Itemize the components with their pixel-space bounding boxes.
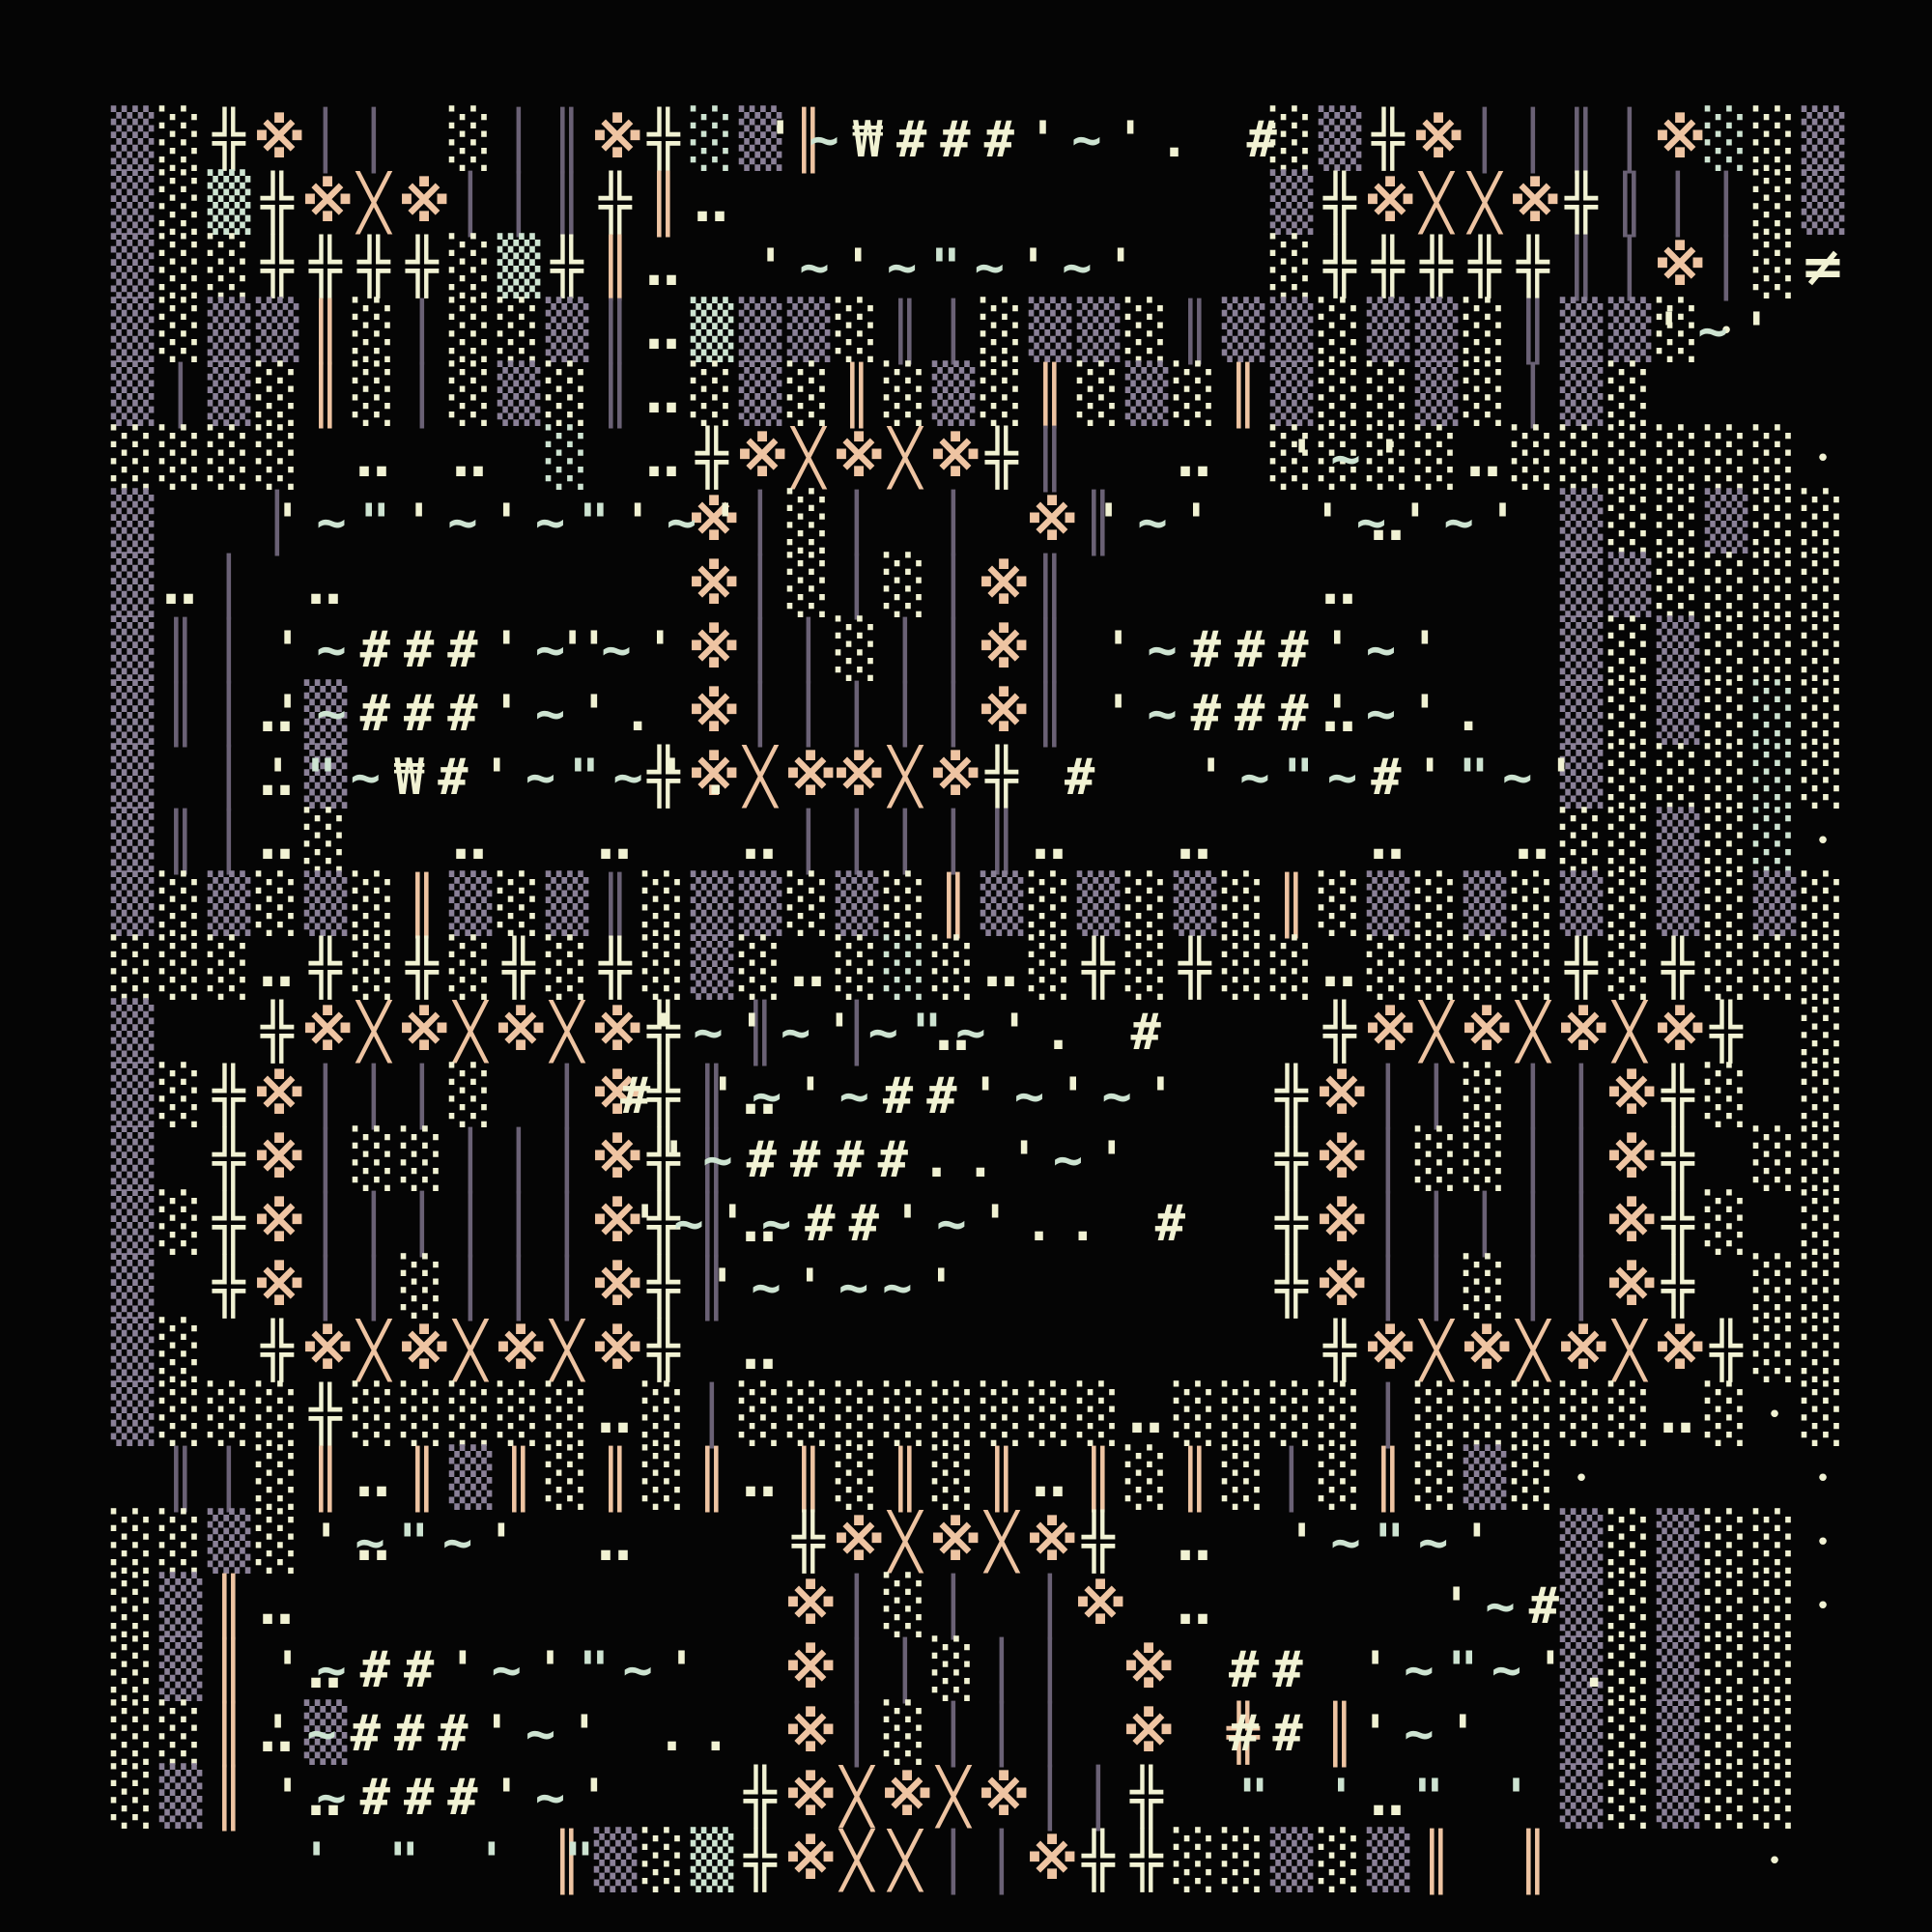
glyph-cell: ░: [1074, 1383, 1122, 1447]
glyph-cell: │: [301, 1065, 350, 1128]
glyph-cell: │: [978, 1702, 1026, 1766]
glyph-cell: ※: [301, 172, 350, 236]
glyph-cell: ░: [1557, 1383, 1605, 1447]
glyph-cell: ░: [1702, 1511, 1750, 1575]
glyph-cell: ░: [350, 363, 398, 427]
glyph-cell: ╬: [1074, 1511, 1122, 1575]
glyph-cell: ║: [398, 1447, 446, 1511]
text-char: ": [912, 1004, 955, 1062]
glyph-cell: ※: [784, 1830, 833, 1893]
text-char: ': [707, 1259, 751, 1317]
glyph-cell: ‥: [591, 810, 639, 873]
glyph-cell: ║: [1026, 618, 1074, 682]
glyph-cell: │: [1702, 172, 1750, 236]
glyph-cell: ╬: [398, 236, 446, 299]
glyph-cell: │: [1509, 1128, 1557, 1192]
text-char: ~: [316, 621, 359, 679]
glyph-cell: ║: [543, 108, 591, 172]
glyph-cell: │: [1509, 108, 1557, 172]
text-char: ': [272, 685, 316, 743]
glyph-cell: ░: [1702, 618, 1750, 682]
glyph-cell: ╳: [929, 1766, 978, 1830]
glyph-cell: ▒: [108, 1065, 156, 1128]
glyph-cell: ░: [1026, 937, 1074, 1001]
text-char: ~: [761, 1195, 805, 1253]
text-char: ": [399, 1514, 442, 1572]
glyph-cell: ▒: [1267, 363, 1316, 427]
glyph-cell: │: [205, 810, 253, 873]
glyph-cell: │: [1074, 1766, 1122, 1830]
glyph-cell: ░: [253, 363, 301, 427]
glyph-cell: ※: [1316, 1128, 1364, 1192]
glyph-cell: ░: [1702, 746, 1750, 810]
text-line: '"~₩#'~"~'.: [263, 746, 744, 810]
glyph-cell: ╬: [1267, 1128, 1316, 1192]
glyph-cell: ╬: [1461, 236, 1509, 299]
text-char: ': [1181, 494, 1225, 552]
text-char: ': [667, 1641, 710, 1699]
glyph-cell: ※: [398, 1320, 446, 1383]
text-line: '~': [1654, 299, 1785, 363]
glyph-cell: ‥: [253, 937, 301, 1001]
glyph-cell: ※: [1412, 108, 1461, 172]
text-char: [1268, 494, 1312, 552]
text-line: '~####..'~': [659, 1128, 1140, 1192]
text-char: #: [1191, 685, 1235, 743]
glyph-cell: │: [446, 1256, 495, 1320]
glyph-cell: ░: [978, 1383, 1026, 1447]
text-char: ': [311, 1514, 355, 1572]
glyph-cell: ╳: [446, 1320, 495, 1383]
text-line: '~#: [1441, 1575, 1573, 1638]
glyph-cell: ░: [156, 1065, 205, 1128]
glyph-cell: ░: [1750, 810, 1799, 873]
glyph-cell: ░: [1605, 937, 1654, 1001]
glyph-cell: │: [833, 682, 881, 746]
glyph-cell: │: [398, 1192, 446, 1256]
glyph-cell: │: [1267, 1447, 1316, 1511]
glyph-cell: │: [446, 1128, 495, 1192]
glyph-cell: ░: [1122, 299, 1171, 363]
glyph-cell: ╬: [1122, 1766, 1171, 1830]
glyph-cell: ░: [1605, 427, 1654, 491]
glyph-cell: ▒: [1557, 554, 1605, 618]
glyph-cell: │: [1412, 1192, 1461, 1256]
text-char: #: [404, 1769, 447, 1827]
glyph-cell: ░: [1461, 1256, 1509, 1320]
glyph-cell: ※: [1364, 1320, 1412, 1383]
text-line: '~"~': [1287, 1511, 1506, 1575]
glyph-cell: ▒: [1799, 108, 1847, 172]
glyph-cell: ▒: [688, 1830, 736, 1893]
text-char: #: [878, 1131, 922, 1189]
text-char: #: [1155, 1195, 1199, 1253]
text-char: ': [492, 494, 535, 552]
glyph-cell: ▒: [1654, 810, 1702, 873]
glyph-cell: ※: [688, 682, 736, 746]
glyph-cell: ║: [156, 682, 205, 746]
glyph-cell: ║: [784, 1447, 833, 1511]
glyph-cell: ░: [1799, 1256, 1847, 1320]
glyph-cell: ‥: [591, 1383, 639, 1447]
glyph-cell: ░: [1605, 1575, 1654, 1638]
glyph-cell: ▒: [1654, 1638, 1702, 1702]
text-char: ~: [1485, 1577, 1528, 1635]
text-char: ~: [1418, 1514, 1462, 1572]
glyph-cell: ║: [1219, 363, 1267, 427]
glyph-cell: ░: [1750, 1702, 1799, 1766]
glyph-cell: ╬: [1557, 937, 1605, 1001]
glyph-cell: ‥: [1316, 937, 1364, 1001]
glyph-cell: ░: [833, 299, 881, 363]
glyph-cell: ║: [1605, 172, 1654, 236]
glyph-cell: ░: [350, 299, 398, 363]
glyph-cell: ▒: [108, 491, 156, 554]
text-char: ': [718, 1195, 761, 1253]
glyph-cell: ▒: [108, 618, 156, 682]
glyph-cell: │: [446, 172, 495, 236]
glyph-cell: ░: [1702, 1383, 1750, 1447]
text-char: ': [843, 239, 887, 297]
text-char: ': [1018, 239, 1062, 297]
glyph-cell: ※: [1654, 108, 1702, 172]
glyph-cell: ※: [1557, 1320, 1605, 1383]
text-char: ': [1116, 111, 1159, 169]
glyph-cell: ▒: [1122, 363, 1171, 427]
glyph-cell: ╳: [881, 1830, 929, 1893]
glyph-cell: ╬: [978, 427, 1026, 491]
glyph-cell: ╬: [1654, 1192, 1702, 1256]
text-char: ': [1196, 749, 1239, 807]
glyph-cell: ░: [1750, 108, 1799, 172]
glyph-cell: ╬: [301, 1383, 350, 1447]
glyph-cell: ※: [398, 172, 446, 236]
text-char: #: [360, 685, 404, 743]
glyph-cell: ╬: [639, 1320, 688, 1383]
glyph-cell: ▒: [108, 873, 156, 937]
text-char: ': [404, 494, 447, 552]
glyph-cell: ※: [736, 427, 784, 491]
glyph-cell: ‥: [639, 299, 688, 363]
ascii-art-canvas: ▒░╬※││░│║※╬░▒║░▒╬※││║│※░░▒▒░▒╬※╳※││║╬║‥▒…: [0, 0, 1932, 1932]
glyph-cell: ░: [833, 937, 881, 1001]
glyph-cell: ░: [446, 299, 495, 363]
glyph-cell: ░: [1219, 1383, 1267, 1447]
text-char: #: [438, 749, 481, 807]
glyph-cell: ▒: [205, 299, 253, 363]
glyph-cell: ░: [1750, 1766, 1799, 1830]
text-char: ~: [1366, 621, 1409, 679]
glyph-cell: ▒: [108, 172, 156, 236]
text-char: ": [569, 749, 612, 807]
glyph-cell: │: [1605, 236, 1654, 299]
text-char: ': [1322, 685, 1366, 743]
text-char: ~: [1327, 749, 1371, 807]
text-char: ~: [1404, 1641, 1447, 1699]
text-char: .: [965, 1131, 1009, 1189]
glyph-cell: ‥: [688, 172, 736, 236]
text-char: ': [272, 621, 316, 679]
text-char: .: [1454, 685, 1497, 743]
glyph-cell: ╬: [543, 236, 591, 299]
text-line: '~###'~' ..: [263, 1702, 744, 1766]
glyph-cell: ‥: [301, 554, 350, 618]
glyph-cell: ░: [398, 1256, 446, 1320]
glyph-cell: ░: [1605, 1766, 1654, 1830]
glyph-cell: ║: [591, 299, 639, 363]
glyph-cell: ※: [495, 1001, 543, 1065]
glyph-cell: ░: [881, 937, 929, 1001]
glyph-cell: ║: [978, 1447, 1026, 1511]
glyph-cell: ※: [1654, 1001, 1702, 1065]
glyph-cell: │: [543, 1256, 591, 1320]
glyph-cell: ※: [833, 427, 881, 491]
glyph-cell: ░: [108, 1638, 156, 1702]
glyph-cell: ▒: [1557, 1766, 1605, 1830]
glyph-cell: ╬: [1316, 236, 1364, 299]
text-char: ~: [799, 239, 842, 297]
glyph-cell: •: [1557, 1447, 1605, 1511]
glyph-cell: ╳: [543, 1320, 591, 1383]
text-char: [1087, 1004, 1130, 1062]
glyph-cell: │: [1026, 1638, 1074, 1702]
text-char: ": [1413, 1769, 1457, 1827]
glyph-cell: │: [1557, 1256, 1605, 1320]
glyph-cell: ░: [1750, 1320, 1799, 1383]
glyph-cell: │: [929, 1830, 978, 1893]
text-char: ': [1409, 621, 1453, 679]
glyph-cell: ░: [1654, 554, 1702, 618]
glyph-cell: ║: [1171, 1447, 1219, 1511]
text-char: ~: [702, 1131, 746, 1189]
text-char: #: [1278, 685, 1321, 743]
text-char: ": [1448, 1641, 1492, 1699]
glyph-cell: ‥: [1509, 810, 1557, 873]
text-char: #: [1272, 1641, 1316, 1699]
text-char: ': [1028, 111, 1071, 169]
glyph-cell: ※: [1026, 1830, 1074, 1893]
text-char: [1203, 111, 1246, 169]
glyph-cell: ╬: [591, 172, 639, 236]
glyph-cell: ▒: [1654, 1575, 1702, 1638]
glyph-cell: ░: [108, 427, 156, 491]
text-char: ~: [1330, 430, 1374, 488]
glyph-cell: │: [929, 1575, 978, 1638]
glyph-cell: ░: [1605, 810, 1654, 873]
glyph-cell: │: [929, 554, 978, 618]
glyph-cell: ░: [446, 236, 495, 299]
glyph-cell: ╬: [301, 236, 350, 299]
text-char: [1152, 749, 1196, 807]
text-char: .: [1067, 1195, 1111, 1253]
glyph-cell: ░: [881, 1383, 929, 1447]
glyph-cell: │: [736, 618, 784, 682]
glyph-cell: ░: [253, 873, 301, 937]
glyph-cell: ▒: [205, 873, 253, 937]
glyph-cell: ║: [156, 810, 205, 873]
glyph-cell: ░: [543, 1383, 591, 1447]
glyph-cell: ╳: [978, 1511, 1026, 1575]
text-char: ": [360, 494, 404, 552]
glyph-cell: ╬: [205, 1065, 253, 1128]
text-char: ~: [535, 685, 579, 743]
text-char: ~: [1053, 1131, 1096, 1189]
text-char: ~: [316, 685, 359, 743]
glyph-cell: ‥: [1171, 810, 1219, 873]
glyph-cell: ░: [784, 363, 833, 427]
glyph-cell: ░: [1605, 746, 1654, 810]
text-char: ": [579, 494, 622, 552]
glyph-cell: ░: [1509, 427, 1557, 491]
glyph-cell: ≠: [1799, 236, 1847, 299]
glyph-cell: ▒: [1364, 1830, 1412, 1893]
text-char: ": [389, 1833, 433, 1890]
text-char: ~: [781, 1004, 824, 1062]
glyph-cell: ╳: [1605, 1001, 1654, 1065]
glyph-cell: ░: [1750, 682, 1799, 746]
glyph-cell: ※: [253, 1256, 301, 1320]
glyph-cell: ║: [1509, 299, 1557, 363]
text-char: #: [360, 1641, 404, 1699]
glyph-cell: ░: [1799, 937, 1847, 1001]
glyph-cell: ╬: [688, 427, 736, 491]
glyph-cell: ╬: [1171, 937, 1219, 1001]
glyph-cell: ▒: [108, 1256, 156, 1320]
glyph-cell: ▒: [1219, 299, 1267, 363]
glyph-cell: ▒: [253, 299, 301, 363]
text-char: ~: [613, 749, 657, 807]
text-char: ': [1326, 1769, 1370, 1827]
glyph-cell: ▒: [156, 1638, 205, 1702]
text-char: ': [492, 1769, 535, 1827]
text-char: #: [805, 1195, 848, 1253]
glyph-cell: ░: [978, 363, 1026, 427]
text-char: .: [657, 1705, 700, 1763]
text-char: ': [1287, 430, 1330, 488]
glyph-cell: │: [301, 1256, 350, 1320]
glyph-cell: ▒: [1412, 299, 1461, 363]
glyph-cell: ░: [1799, 491, 1847, 554]
glyph-cell: │: [833, 1575, 881, 1638]
glyph-cell: ╬: [398, 937, 446, 1001]
text-char: ~: [623, 1641, 667, 1699]
text-char: ~: [868, 1004, 912, 1062]
glyph-cell: ║: [156, 1447, 205, 1511]
glyph-cell: ║: [301, 299, 350, 363]
glyph-cell: ░: [1316, 1830, 1364, 1893]
glyph-cell: ▒: [1074, 873, 1122, 937]
glyph-cell: ░: [1799, 618, 1847, 682]
glyph-cell: ░: [639, 873, 688, 937]
text-char: [1370, 1769, 1413, 1827]
text-char: ~: [442, 1514, 486, 1572]
text-char: #: [747, 1131, 790, 1189]
text-char: ': [263, 749, 306, 807]
text-line: " ' " ': [1238, 1766, 1545, 1830]
glyph-cell: ░: [1702, 1192, 1750, 1256]
text-char: ~: [1101, 1067, 1145, 1125]
glyph-cell: ░: [1750, 746, 1799, 810]
glyph-cell: ▒: [1799, 172, 1847, 236]
text-char: #: [1278, 621, 1321, 679]
glyph-cell: ║: [881, 299, 929, 363]
glyph-cell: │: [1461, 1192, 1509, 1256]
glyph-cell: │: [929, 1702, 978, 1766]
glyph-cell: ░: [1702, 1575, 1750, 1638]
glyph-cell: ▒: [543, 299, 591, 363]
glyph-cell: ※: [253, 1192, 301, 1256]
glyph-cell: ░: [1412, 427, 1461, 491]
glyph-cell: │: [398, 299, 446, 363]
text-char: ': [630, 1195, 673, 1253]
glyph-cell: │: [1026, 1766, 1074, 1830]
glyph-cell: ▒: [1412, 363, 1461, 427]
text-char: #: [1229, 1641, 1272, 1699]
glyph-cell: ░: [1605, 1702, 1654, 1766]
glyph-cell: ‥: [1026, 810, 1074, 873]
glyph-cell: ░: [1074, 363, 1122, 427]
glyph-cell: ░: [1509, 873, 1557, 937]
text-char: ': [1313, 494, 1356, 552]
glyph-cell: •: [1799, 810, 1847, 873]
glyph-cell: ▒: [1267, 172, 1316, 236]
glyph-cell: ░: [1219, 937, 1267, 1001]
glyph-cell: ░: [350, 873, 398, 937]
glyph-cell: ░: [784, 491, 833, 554]
glyph-cell: ░: [1799, 1001, 1847, 1065]
glyph-cell: ░: [446, 937, 495, 1001]
text-char: ': [1546, 749, 1589, 807]
glyph-cell: ▒: [108, 554, 156, 618]
text-char: #: [404, 621, 447, 679]
text-line: '~###'~'.: [1103, 682, 1497, 746]
glyph-cell: ░: [1171, 363, 1219, 427]
glyph-cell: ░: [108, 1766, 156, 1830]
text-char: [1111, 1195, 1154, 1253]
text-char: ₩: [394, 749, 438, 807]
text-char: .: [1043, 1004, 1087, 1062]
glyph-cell: ║: [301, 1447, 350, 1511]
glyph-cell: ░: [736, 1383, 784, 1447]
glyph-cell: │: [543, 1065, 591, 1128]
text-char: #: [984, 111, 1028, 169]
glyph-cell: ░: [1605, 1511, 1654, 1575]
glyph-cell: ╬: [1122, 1830, 1171, 1893]
glyph-cell: ※: [1122, 1638, 1171, 1702]
glyph-cell: ╳: [1412, 1001, 1461, 1065]
glyph-cell: ‥: [446, 810, 495, 873]
text-char: ': [263, 1705, 306, 1763]
glyph-cell: ※: [784, 746, 833, 810]
text-char: ': [1360, 1705, 1404, 1763]
text-char: ': [476, 1833, 520, 1890]
glyph-cell: ░: [495, 1383, 543, 1447]
glyph-cell: │: [205, 1447, 253, 1511]
glyph-cell: │: [205, 682, 253, 746]
glyph-cell: ▒: [1750, 873, 1799, 937]
glyph-cell: ░: [205, 1383, 253, 1447]
glyph-cell: ░: [1364, 363, 1412, 427]
glyph-cell: ░: [639, 1447, 688, 1511]
text-char: ~: [351, 749, 394, 807]
glyph-cell: │: [350, 1065, 398, 1128]
glyph-cell: ░: [543, 937, 591, 1001]
text-char: [1317, 1641, 1360, 1699]
glyph-cell: ※: [1122, 1702, 1171, 1766]
glyph-cell: │: [495, 1128, 543, 1192]
text-char: ~: [535, 1769, 579, 1827]
glyph-cell: ※: [1026, 491, 1074, 554]
